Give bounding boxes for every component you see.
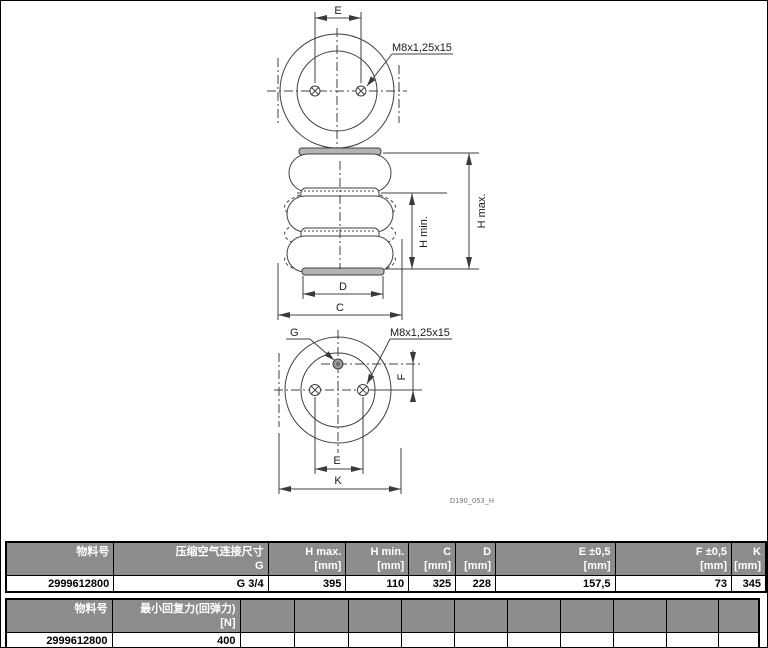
table-cell: 73 bbox=[615, 576, 732, 593]
column-header bbox=[613, 599, 666, 633]
dim-label-d: D bbox=[339, 281, 347, 293]
technical-drawing: E M8x1,25x15 bbox=[1, 1, 768, 536]
column-header bbox=[666, 599, 718, 633]
table-cell bbox=[240, 633, 294, 648]
top-view bbox=[267, 12, 453, 154]
dim-label-e-top: E bbox=[334, 5, 341, 17]
leader-line bbox=[367, 339, 390, 384]
bolt-hole-icon bbox=[310, 86, 320, 96]
column-header: 物料号 bbox=[6, 542, 114, 576]
column-header: 物料号 bbox=[6, 599, 112, 633]
dim-label-h-max: H max. bbox=[476, 194, 488, 229]
dim-label-h-min: H min. bbox=[418, 216, 430, 248]
column-header: D[mm] bbox=[456, 542, 496, 576]
dimensions-table: 物料号 压缩空气连接尺寸GH max.[mm]H min.[mm]C[mm]D[… bbox=[5, 541, 767, 593]
table-cell: 325 bbox=[409, 576, 456, 593]
table-cell: 345 bbox=[732, 576, 766, 593]
dim-label-e-bottom: E bbox=[333, 455, 340, 467]
column-header: E ±0,5[mm] bbox=[496, 542, 616, 576]
air-port-hole-icon bbox=[333, 359, 343, 369]
table-row: 2999612800400 bbox=[6, 633, 759, 648]
table-cell: G 3/4 bbox=[114, 576, 268, 593]
column-header bbox=[560, 599, 613, 633]
column-header: 最小回复力(回弹力)[N] bbox=[112, 599, 240, 633]
dim-label-c: C bbox=[336, 302, 344, 314]
column-header: C[mm] bbox=[409, 542, 456, 576]
dim-label-k: K bbox=[334, 475, 342, 487]
bolt-hole-icon bbox=[358, 385, 369, 396]
table-cell: 400 bbox=[112, 633, 240, 648]
header-row: 物料号 最小回复力(回弹力)[N] bbox=[6, 599, 759, 633]
side-view bbox=[278, 148, 479, 320]
column-header bbox=[240, 599, 294, 633]
column-header: F ±0,5[mm] bbox=[615, 542, 732, 576]
table-cell bbox=[666, 633, 718, 648]
table-cell bbox=[560, 633, 613, 648]
column-header bbox=[507, 599, 560, 633]
column-header: K[mm] bbox=[732, 542, 766, 576]
dim-label-f: F bbox=[396, 373, 408, 380]
column-header bbox=[348, 599, 401, 633]
table-cell: 2999612800 bbox=[6, 576, 114, 593]
header-row: 物料号 压缩空气连接尺寸GH max.[mm]H min.[mm]C[mm]D[… bbox=[6, 542, 766, 576]
table-cell: 157,5 bbox=[496, 576, 616, 593]
table-cell bbox=[348, 633, 401, 648]
table-cell: 228 bbox=[456, 576, 496, 593]
bottom-plate bbox=[302, 268, 384, 275]
table-cell: 2999612800 bbox=[6, 633, 112, 648]
column-header bbox=[454, 599, 507, 633]
bottom-view bbox=[274, 330, 452, 494]
bolt-hole-icon bbox=[356, 86, 366, 96]
thread-label-bottom: M8x1,25x15 bbox=[390, 327, 450, 339]
rebound-force-table: 物料号 最小回复力(回弹力)[N] 2999612800400 bbox=[5, 598, 760, 648]
table-cell bbox=[401, 633, 454, 648]
table-cell bbox=[507, 633, 560, 648]
table-cell bbox=[454, 633, 507, 648]
column-header bbox=[294, 599, 348, 633]
drawing-id: D190_053_H bbox=[450, 498, 494, 505]
column-header: 压缩空气连接尺寸G bbox=[114, 542, 268, 576]
bolt-hole-icon bbox=[310, 385, 321, 396]
table-cell: 395 bbox=[268, 576, 346, 593]
column-header bbox=[401, 599, 454, 633]
column-header: H max.[mm] bbox=[268, 542, 346, 576]
table-cell bbox=[294, 633, 348, 648]
column-header: H min.[mm] bbox=[346, 542, 409, 576]
table-cell: 110 bbox=[346, 576, 409, 593]
datasheet-page: E M8x1,25x15 bbox=[0, 0, 768, 648]
table-cell bbox=[613, 633, 666, 648]
table-cell bbox=[718, 633, 759, 648]
air-port-label: G bbox=[290, 327, 299, 339]
column-header bbox=[718, 599, 759, 633]
table-row: 2999612800G 3/4395110325228157,573345 bbox=[6, 576, 766, 593]
thread-label-top: M8x1,25x15 bbox=[392, 42, 452, 54]
